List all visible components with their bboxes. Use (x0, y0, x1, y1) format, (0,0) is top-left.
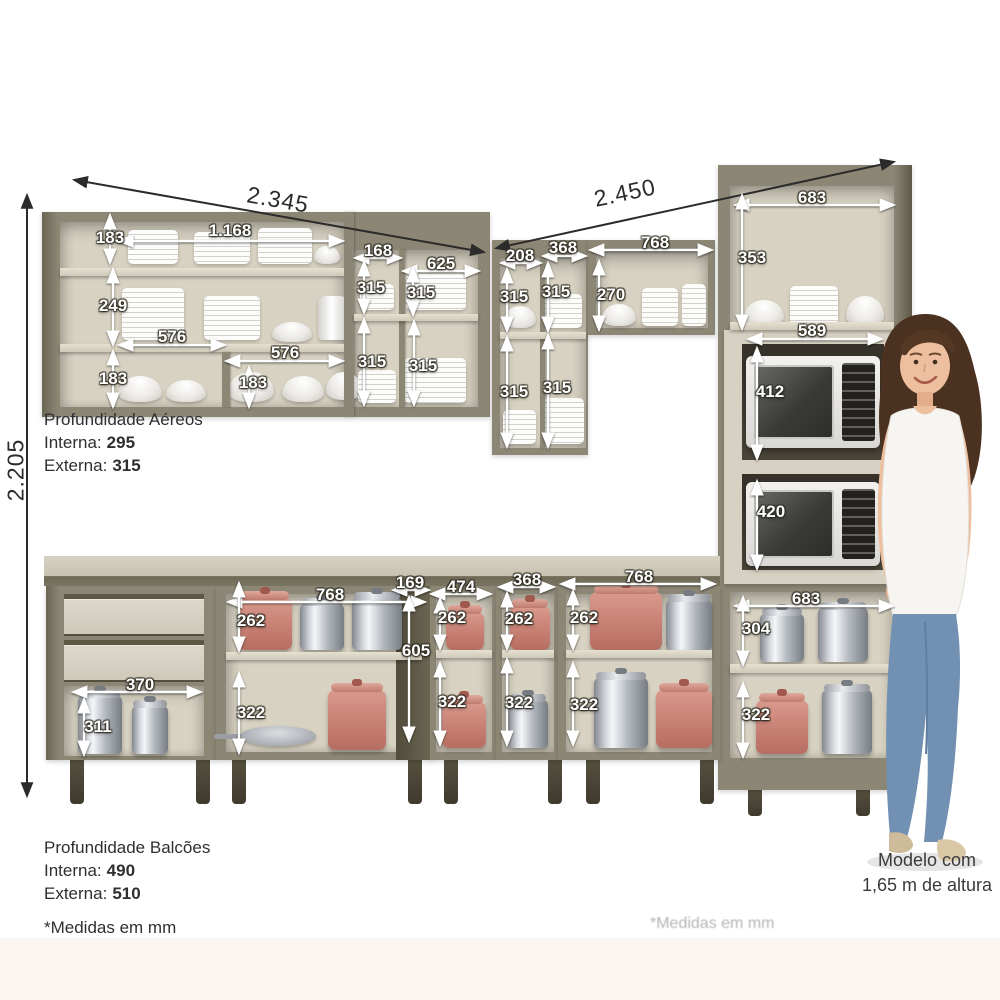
cabinet-side-panel (46, 586, 60, 760)
dimension-label: 368 (513, 570, 541, 590)
spec-label: Interna: (44, 861, 102, 880)
cabinet-shelf (436, 650, 492, 658)
pan (240, 726, 316, 746)
dimension-label: 311 (84, 717, 111, 737)
cabinet-leg (196, 760, 210, 804)
dimension-label: 768 (625, 567, 653, 587)
dimension-label: 315 (409, 356, 437, 376)
depth-spec-base: Profundidade Balcões Interna:490 Externa… (44, 836, 210, 905)
model-photo (843, 302, 1000, 877)
spec-title: Profundidade Balcões (44, 836, 210, 859)
dimension-label: 2.205 (3, 439, 30, 502)
cabinet-leg (548, 760, 562, 804)
plates (358, 370, 396, 403)
dimension-label: 322 (505, 693, 533, 713)
background-band (0, 938, 1000, 1000)
dimension-label: 315 (358, 352, 386, 372)
model-caption-line2: 1,65 m de altura (842, 873, 1000, 898)
plates (204, 296, 260, 340)
plates (790, 286, 838, 326)
kitchen-product-diagram: 2.3452.4502.2051831.16824957618357618316… (0, 0, 1000, 1000)
dimension-label: 589 (798, 321, 826, 341)
pot-steel (300, 604, 344, 650)
cabinet-leg (700, 760, 714, 804)
dimension-label: 322 (438, 692, 466, 712)
plates (682, 284, 706, 326)
bowl (602, 304, 636, 326)
spec-line: Externa:510 (44, 882, 210, 905)
dimension-label: 625 (427, 254, 455, 274)
spec-title: Profundidade Aéreos (44, 408, 203, 431)
spec-line: Externa:315 (44, 454, 203, 477)
spec-label: Interna: (44, 433, 102, 452)
dimension-label: 768 (641, 233, 669, 253)
pot-salmon (590, 592, 662, 650)
dimension-label: 576 (271, 343, 299, 363)
dimension-label: 315 (407, 283, 435, 303)
cabinet-divider (222, 352, 230, 407)
depth-spec-wall: Profundidade Aéreos Interna:295 Externa:… (44, 408, 203, 477)
plates (642, 288, 678, 326)
dimension-label: 183 (99, 369, 127, 389)
drawer-front (64, 640, 204, 680)
dimension-label: 315 (542, 282, 570, 302)
bowl (314, 246, 340, 264)
pot-steel (132, 706, 168, 754)
spec-line: Interna:295 (44, 431, 203, 454)
dimension-label: 315 (500, 287, 528, 307)
bowl (166, 380, 206, 402)
units-footnote: *Medidas em mm (44, 918, 176, 938)
drawer-front (64, 594, 204, 634)
dimension-label: 420 (757, 502, 785, 522)
cabinet-shelf (354, 314, 478, 321)
spec-label: Externa: (44, 884, 107, 903)
plates (503, 410, 536, 444)
spec-value: 315 (112, 456, 140, 475)
dimension-label: 474 (447, 577, 475, 597)
cabinet-divider (344, 212, 354, 417)
dimension-label: 249 (99, 296, 127, 316)
cabinet-shelf (502, 650, 554, 658)
dimension-label: 262 (438, 608, 466, 628)
spec-value: 510 (112, 884, 140, 903)
bowl (282, 376, 324, 402)
cabinet-leg (444, 760, 458, 804)
model-caption-line1: Modelo com (842, 848, 1000, 873)
dimension-label: 208 (506, 246, 534, 266)
dimension-label: 262 (570, 608, 598, 628)
dimension-label: 183 (96, 228, 124, 248)
units-watermark: *Medidas em mm (650, 915, 774, 933)
dimension-label: 315 (543, 378, 571, 398)
dimension-label: 315 (357, 278, 385, 298)
cabinet-divider (399, 250, 405, 407)
pot-steel (666, 600, 712, 650)
dimension-label: 262 (505, 609, 533, 629)
cabinet-shelf (500, 332, 586, 339)
dimension-label: 315 (500, 382, 528, 402)
dimension-label: 683 (792, 589, 820, 609)
cabinet-leg (70, 760, 84, 804)
cabinet-leg (232, 760, 246, 804)
bowl (504, 306, 536, 328)
dimension-label: 304 (742, 619, 770, 639)
plates (258, 228, 312, 264)
model-caption: Modelo com 1,65 m de altura (842, 848, 1000, 898)
cabinet-shelf (226, 652, 422, 660)
dimension-label: 576 (158, 327, 186, 347)
pot-salmon (328, 690, 386, 750)
spec-value: 490 (107, 861, 135, 880)
plates (128, 230, 178, 264)
plates (544, 398, 584, 444)
cabinet-shelf (566, 650, 712, 658)
dimension-label: 322 (570, 695, 598, 715)
spec-value: 295 (107, 433, 135, 452)
dimension-label: 183 (239, 373, 267, 393)
dimension-label: 768 (316, 585, 344, 605)
dimension-label: 370 (126, 675, 154, 695)
dimension-label: 353 (738, 248, 766, 268)
cabinet-side-panel (42, 212, 58, 417)
pot-steel (594, 678, 648, 748)
cabinet-leg (408, 760, 422, 804)
dimension-label: 2.450 (592, 173, 659, 212)
dimension-label: 368 (549, 238, 577, 258)
dimension-label: 322 (742, 705, 770, 725)
pot-steel (352, 598, 402, 650)
dimension-label: 412 (756, 382, 784, 402)
dimension-label: 262 (237, 611, 265, 631)
dimension-label: 168 (364, 241, 392, 261)
cabinet-leg (586, 760, 600, 804)
dimension-label: 169 (396, 573, 424, 593)
dimension-label: 605 (402, 641, 430, 661)
dimension-label: 322 (237, 703, 265, 723)
bowl (272, 322, 312, 342)
dimension-label: 270 (597, 285, 625, 305)
cabinet-shelf (60, 344, 344, 352)
pot-salmon (656, 690, 712, 748)
cabinet-leg (748, 790, 762, 816)
spec-label: Externa: (44, 456, 107, 475)
cabinet-shelf (60, 268, 344, 276)
spec-line: Interna:490 (44, 859, 210, 882)
dimension-label: 1.168 (209, 221, 252, 241)
countertop (44, 556, 720, 586)
dimension-label: 683 (798, 188, 826, 208)
